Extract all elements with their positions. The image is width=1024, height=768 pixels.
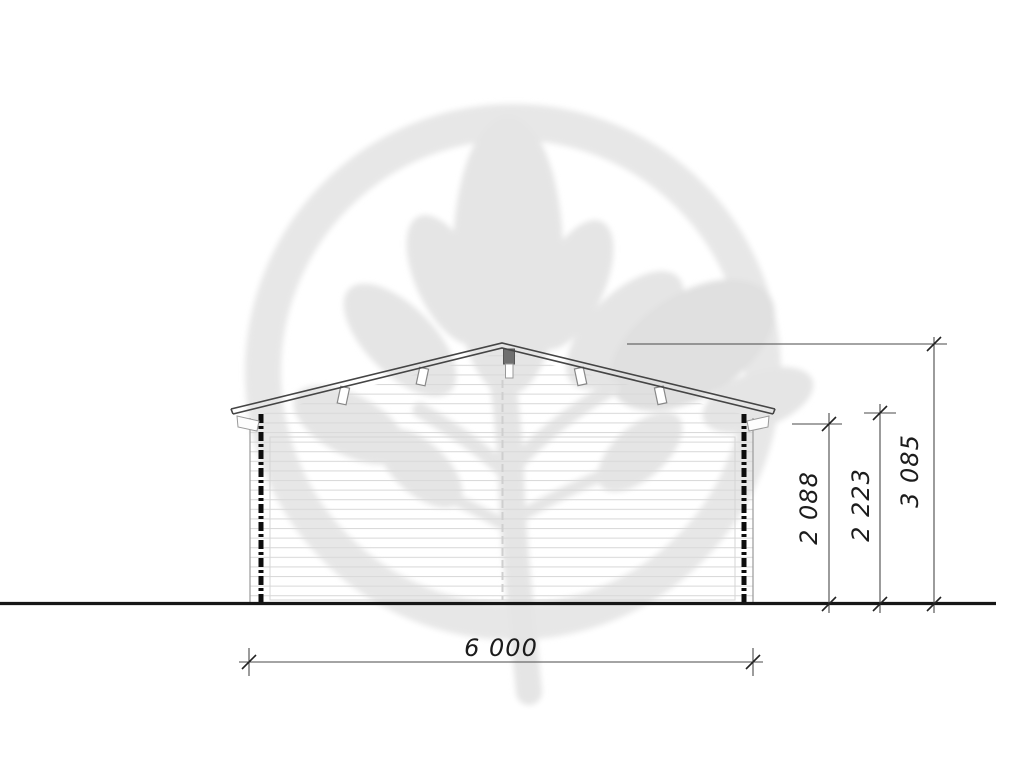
elevation-drawing-canvas: 2 088 2 223 3 085 6 000 <box>0 0 1024 768</box>
dimension-label-width: 6 000 <box>464 634 538 662</box>
ridge-beam-lower <box>506 364 514 378</box>
dimension-label-wall-top-height: 2 223 <box>847 468 875 542</box>
elevation-drawing: 2 088 2 223 3 085 6 000 <box>0 0 1024 768</box>
dimension-label-eaves-height: 2 088 <box>795 471 823 545</box>
roof-left-cap <box>231 409 233 414</box>
dimension-label-ridge-height: 3 085 <box>896 434 924 508</box>
